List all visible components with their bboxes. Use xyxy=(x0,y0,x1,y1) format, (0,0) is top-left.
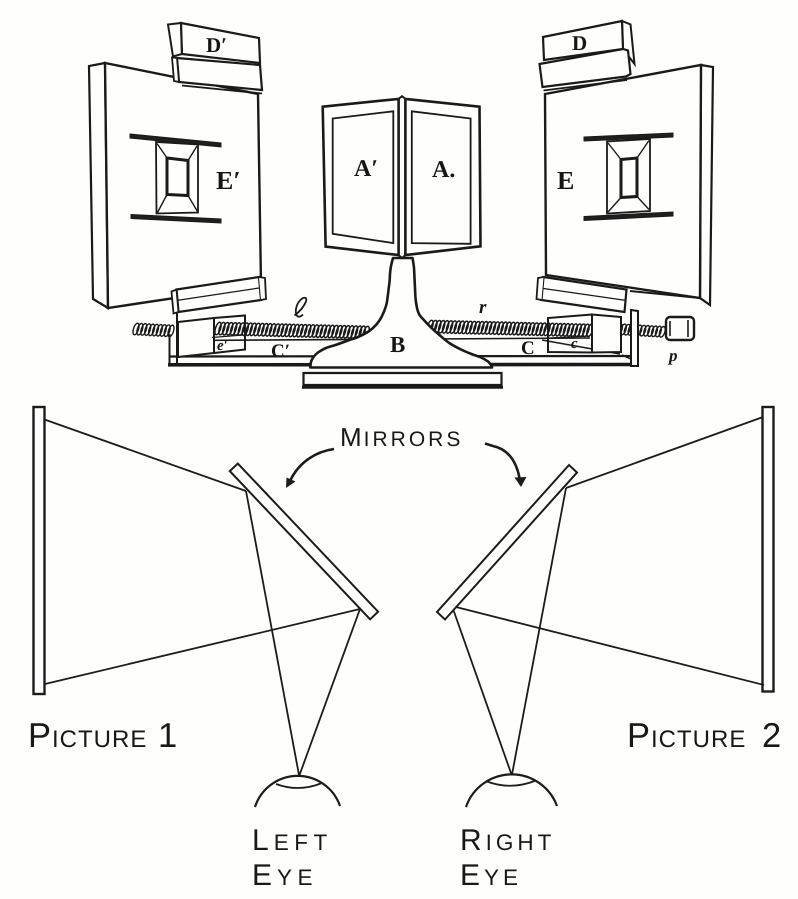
svg-text:EYE: EYE xyxy=(252,859,318,892)
svg-text:D′: D′ xyxy=(206,33,227,57)
svg-text:PICTURE 2: PICTURE 2 xyxy=(627,717,782,755)
svg-text:E′: E′ xyxy=(216,166,241,195)
svg-text:B: B xyxy=(390,332,405,357)
svg-text:A.: A. xyxy=(432,157,455,183)
svg-text:RIGHT: RIGHT xyxy=(460,824,555,857)
svg-text:E: E xyxy=(557,166,574,195)
svg-text:EYE: EYE xyxy=(460,859,522,892)
svg-text:p: p xyxy=(667,346,678,365)
svg-text:c: c xyxy=(571,336,578,352)
svg-text:PICTURE 1: PICTURE 1 xyxy=(28,717,178,755)
svg-text:C′: C′ xyxy=(271,341,290,362)
svg-text:C: C xyxy=(521,338,535,359)
svg-text:A′: A′ xyxy=(354,156,378,182)
svg-text:e′: e′ xyxy=(217,338,228,354)
svg-text:D: D xyxy=(572,31,587,55)
svg-text:r: r xyxy=(479,297,487,318)
svg-text:LEFT: LEFT xyxy=(252,824,333,857)
svg-text:MIRRORS: MIRRORS xyxy=(340,422,463,452)
